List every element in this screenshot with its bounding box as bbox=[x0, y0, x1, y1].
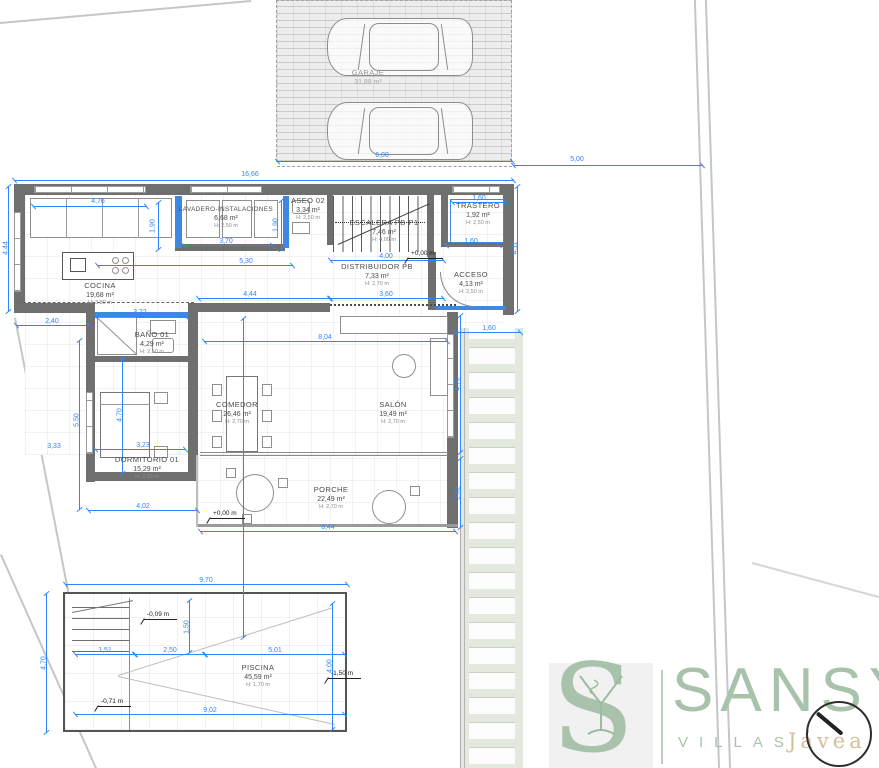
chair-symbol bbox=[278, 478, 288, 488]
dim-label: 1,60 bbox=[463, 238, 479, 245]
chair-symbol bbox=[262, 384, 272, 396]
paver-walkway bbox=[460, 328, 523, 768]
dimension-line bbox=[88, 510, 198, 511]
dim-label: 4,76 bbox=[90, 198, 106, 205]
room-label-acceso: ACCESO 4,13 m² H: 2,50 m bbox=[454, 270, 488, 296]
dim-label: 3,22 bbox=[132, 309, 148, 316]
dim-label: 1,50 bbox=[184, 619, 191, 635]
window bbox=[86, 392, 93, 454]
dim-label: 5,01 bbox=[267, 647, 283, 654]
dim-label: 3,70 bbox=[218, 238, 234, 245]
sink-symbol bbox=[70, 258, 86, 272]
dim-label: 5,00 bbox=[569, 156, 585, 163]
level-marker: +0,00 m bbox=[210, 510, 245, 519]
dimension-line bbox=[16, 325, 90, 326]
site-boundary-line bbox=[752, 562, 879, 598]
pool-stairs-symbol bbox=[72, 600, 129, 652]
dim-label: 1,60 bbox=[481, 325, 497, 332]
wall-comedor-top bbox=[188, 303, 330, 312]
sofa-symbol bbox=[430, 338, 448, 396]
floor-plan-canvas: 16,66 6,00 5,00 4,76 1,90 1,90 3,70 5,30… bbox=[0, 0, 879, 768]
dim-label: 4,70 bbox=[117, 407, 124, 423]
dimension-line bbox=[200, 531, 456, 532]
wall-cocina-bottom bbox=[14, 303, 95, 313]
dimension-line bbox=[75, 654, 135, 655]
room-label-bano01: BAÑO 01 4,29 m² H: 2,50 m bbox=[135, 330, 169, 356]
dim-label: 3,60 bbox=[378, 291, 394, 298]
dimension-line bbox=[281, 200, 282, 250]
dimension-line bbox=[277, 161, 513, 162]
car-symbol bbox=[327, 18, 473, 76]
dim-label: 1,51 bbox=[97, 647, 113, 654]
car-symbol bbox=[327, 102, 473, 160]
dim-label: 8,04 bbox=[317, 334, 333, 341]
cooktop-burner bbox=[112, 267, 119, 274]
dim-label: 9,70 bbox=[198, 577, 214, 584]
dimension-line bbox=[446, 245, 500, 246]
dimension-line bbox=[455, 332, 521, 333]
dim-label: 6,00 bbox=[374, 152, 390, 159]
window bbox=[190, 186, 262, 193]
dimension-line bbox=[95, 449, 186, 450]
dim-label: 4,70 bbox=[41, 655, 48, 671]
dimension-line bbox=[183, 245, 273, 246]
dim-label: 4,70 bbox=[455, 376, 462, 392]
logo-tagline-text: VILLAS bbox=[678, 734, 795, 751]
accent-wall bbox=[283, 196, 289, 248]
martini-glass-icon bbox=[574, 668, 628, 742]
room-label-comedor: COMEDOR 26,46 m² H: 2,70 m bbox=[216, 400, 258, 426]
dim-label: 5,30 bbox=[238, 258, 254, 265]
dim-label: 4,44 bbox=[3, 240, 10, 256]
dimension-line bbox=[75, 714, 345, 715]
window bbox=[34, 186, 146, 193]
chair-symbol bbox=[410, 486, 420, 496]
sofa-symbol bbox=[340, 316, 448, 334]
room-label-lavadero: LAVADERO-INSTALACIONES 6,68 m² H: 2,50 m bbox=[179, 206, 273, 230]
pool-stair-edge bbox=[129, 598, 130, 730]
dim-label: 8,44 bbox=[320, 524, 336, 531]
dim-label: 9,02 bbox=[202, 707, 218, 714]
dim-label: 4,02 bbox=[135, 503, 151, 510]
wall-trastero-left bbox=[441, 195, 448, 245]
cooktop-burner bbox=[112, 257, 119, 264]
dim-label: 16,66 bbox=[240, 171, 260, 178]
dimension-line bbox=[14, 180, 514, 181]
dimension-line bbox=[330, 260, 444, 261]
room-label-escalera: ESCALERA PB-P1 7,46 m² H: 4,00 m bbox=[350, 218, 419, 244]
dimension-line bbox=[205, 654, 345, 655]
cabinet-divider bbox=[66, 198, 67, 238]
level-marker: -0,71 m bbox=[98, 698, 131, 707]
dim-label: 4,00 bbox=[378, 253, 394, 260]
room-label-distribuidor: DISTRIBUIDOR PB 7,33 m² H: 2,70 m bbox=[341, 262, 413, 288]
road-line bbox=[705, 0, 731, 768]
dimension-line bbox=[33, 206, 147, 207]
room-label-porche: PORCHE 22,49 m² H: 2,70 m bbox=[314, 485, 349, 511]
dimension-line bbox=[158, 202, 159, 250]
open-boundary-line bbox=[330, 304, 456, 306]
dimension-line bbox=[95, 316, 186, 317]
dimension-line bbox=[65, 584, 348, 585]
wall-bano-divider bbox=[95, 356, 188, 362]
logo-divider bbox=[661, 670, 663, 764]
room-label-dormitorio01: DORMITORIO 01 15,29 m² H: 2,50 m bbox=[115, 455, 179, 481]
level-marker: -1,50 m bbox=[328, 670, 361, 679]
dim-label: 4,11 bbox=[512, 240, 519, 255]
car-cabin bbox=[369, 107, 439, 155]
round-table-symbol bbox=[236, 474, 274, 512]
dim-label: 1,90 bbox=[150, 218, 157, 234]
dimension-line bbox=[204, 341, 448, 342]
room-label-piscina: PISCINA 45,59 m² H: 1,70 m bbox=[242, 663, 275, 689]
room-label-garaje: GARAJE 31,88 m² bbox=[352, 68, 384, 87]
dimension-line bbox=[513, 165, 703, 166]
dim-label: 2,62 bbox=[455, 485, 462, 501]
chair-symbol bbox=[212, 384, 222, 396]
level-marker: +0,00 m bbox=[408, 250, 443, 259]
chair-symbol bbox=[262, 410, 272, 422]
dim-label: 2,50 bbox=[162, 647, 178, 654]
dim-label: 3,23 bbox=[135, 442, 151, 449]
room-label-cocina: COCINA 19,68 m² H: 3,80 m bbox=[84, 281, 116, 307]
road-line bbox=[694, 0, 720, 768]
bed-pillow-line bbox=[100, 404, 150, 405]
dim-label: 4,44 bbox=[242, 291, 258, 298]
room-label-salon: SALÓN 19,49 m² H: 2,70 m bbox=[379, 400, 407, 426]
dim-label: 2,40 bbox=[44, 318, 60, 325]
dimension-line bbox=[243, 318, 244, 638]
round-table-symbol bbox=[372, 490, 406, 524]
sliding-door bbox=[200, 452, 448, 456]
site-boundary-line bbox=[0, 0, 251, 23]
chair-symbol bbox=[226, 468, 236, 478]
level-marker: -0,09 m bbox=[144, 611, 177, 620]
chair-symbol bbox=[262, 436, 272, 448]
dimension-line bbox=[97, 265, 293, 266]
garage-front-line bbox=[277, 166, 512, 167]
car-cabin bbox=[369, 23, 439, 71]
nightstand-symbol bbox=[154, 392, 168, 404]
dim-label: 5,50 bbox=[74, 412, 81, 428]
coffee-table-symbol bbox=[392, 354, 416, 378]
dimension-line bbox=[135, 654, 205, 655]
dimension-line bbox=[330, 298, 444, 299]
room-label-trastero: TRASTERO 1,92 m² H: 2,50 m bbox=[456, 201, 500, 227]
window bbox=[14, 212, 21, 292]
cooktop-burner bbox=[122, 257, 129, 264]
cooktop-burner bbox=[122, 267, 129, 274]
dim-label: 1,90 bbox=[273, 217, 280, 233]
window bbox=[447, 334, 454, 438]
chair-symbol bbox=[212, 436, 222, 448]
dim-label: 3,33 bbox=[46, 443, 62, 450]
porch-side-edge bbox=[196, 455, 198, 527]
sink-symbol bbox=[292, 222, 310, 234]
dimension-line bbox=[198, 298, 330, 299]
room-label-aseo02: ASEO 02 3,34 m² H: 2,50 m bbox=[291, 196, 325, 222]
window bbox=[452, 186, 500, 193]
cabinet-divider bbox=[138, 198, 139, 238]
